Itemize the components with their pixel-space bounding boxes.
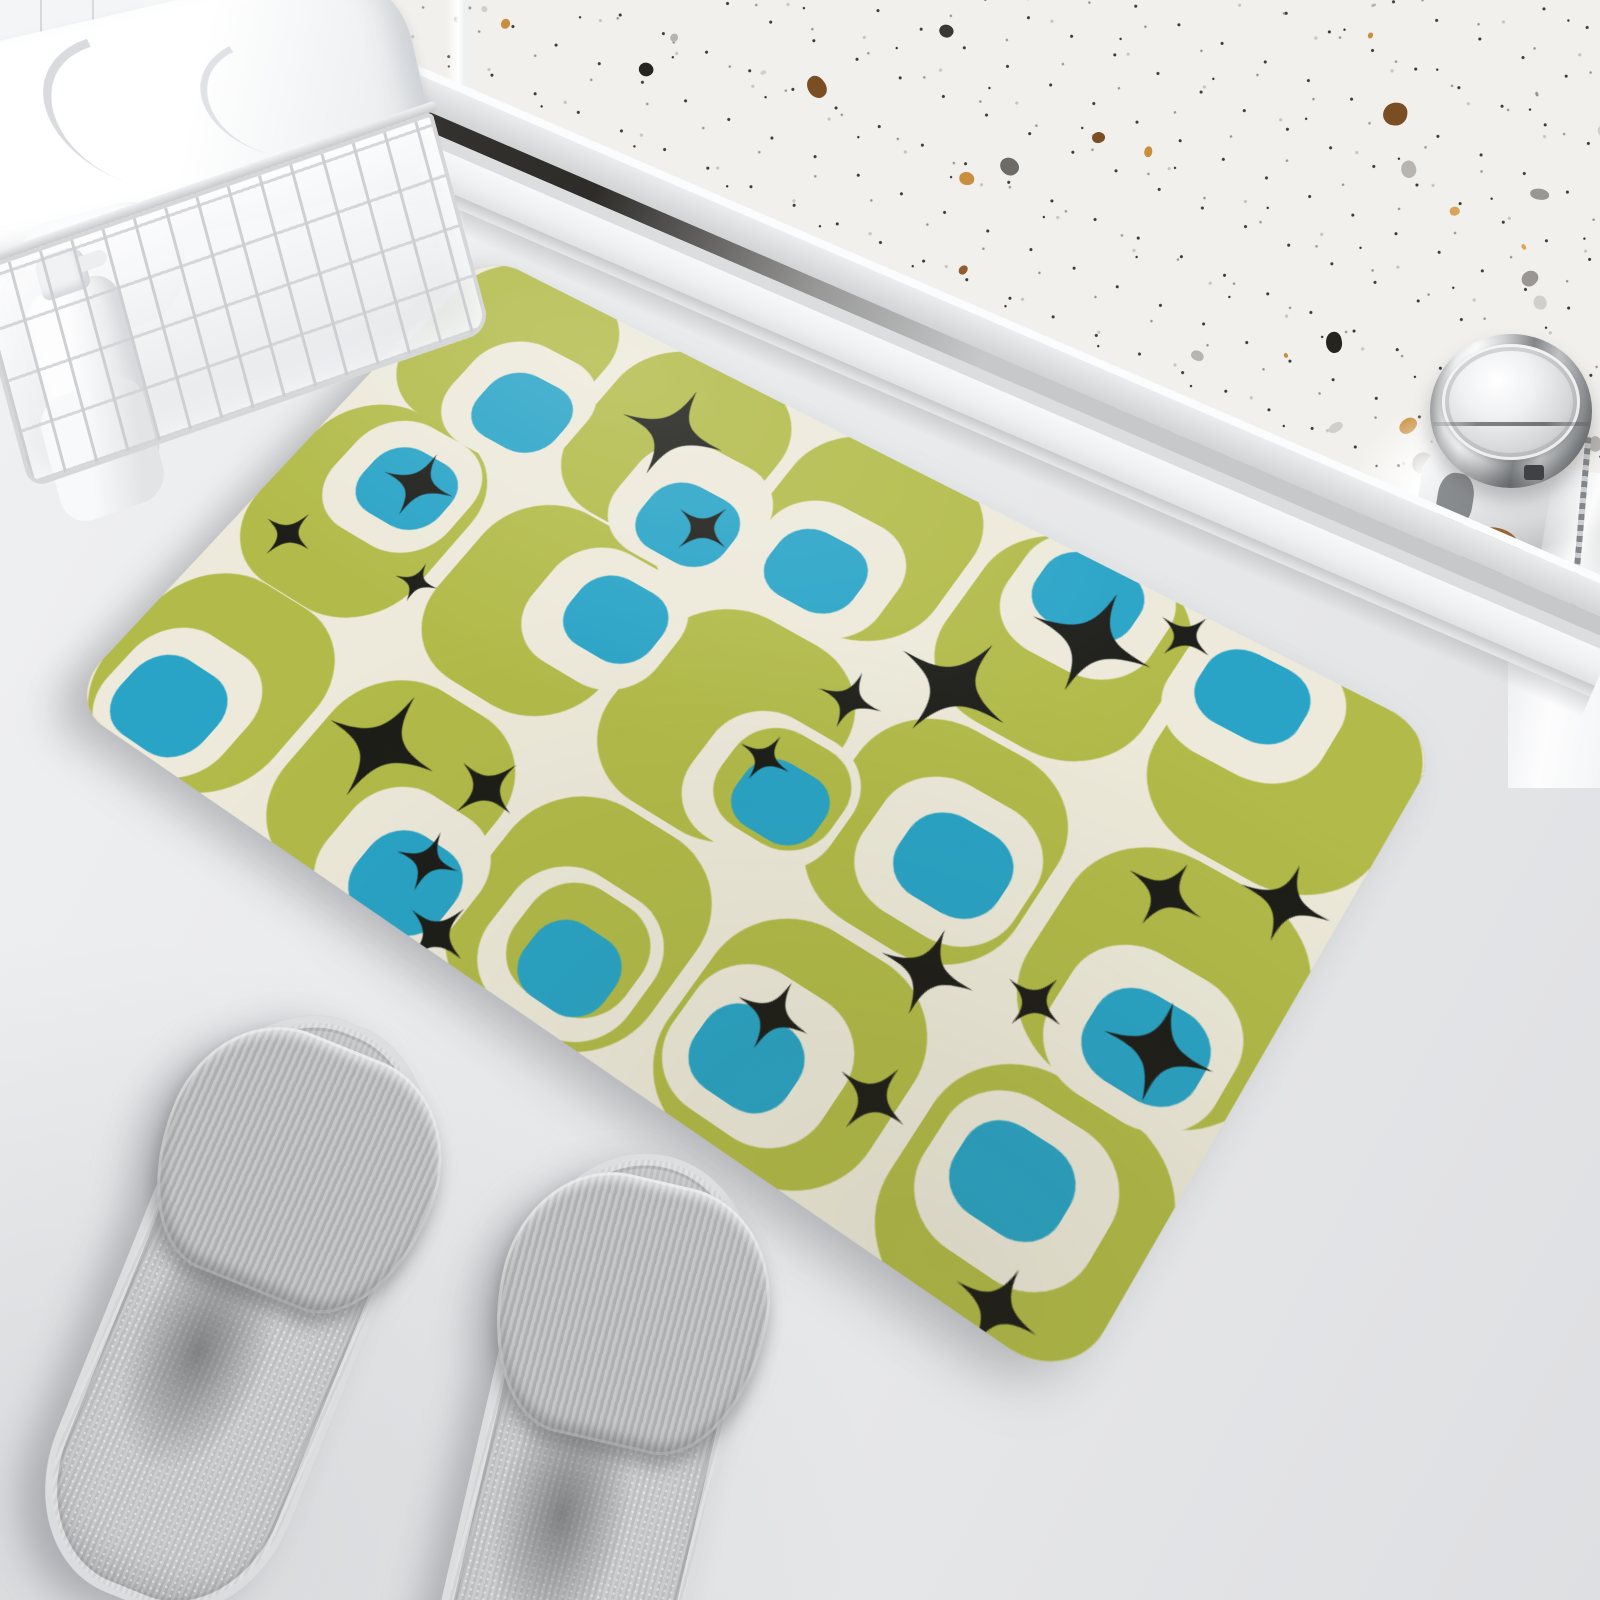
bottle-cap [33, 244, 92, 303]
terrazzo-chip [957, 264, 969, 277]
terrazzo-chip [760, 70, 767, 76]
terrazzo-chip [1327, 420, 1345, 436]
terrazzo-chip [802, 72, 831, 101]
faucet-knob-seam [1433, 422, 1589, 426]
terrazzo-chip [1448, 205, 1461, 218]
terrazzo-chip [1283, 352, 1290, 359]
terrazzo-chip [499, 17, 513, 31]
terrazzo-chip [1520, 244, 1527, 251]
faucet-knob [1430, 334, 1592, 488]
terrazzo-chip [936, 22, 955, 41]
terrazzo-chip [1091, 129, 1107, 144]
terrazzo-chip [1368, 32, 1374, 38]
terrazzo-chip [636, 60, 655, 79]
terrazzo-chip [996, 154, 1022, 180]
terrazzo-chip [1534, 296, 1547, 310]
terrazzo-chip [1529, 188, 1549, 201]
terrazzo-chip [1519, 267, 1541, 289]
terrazzo-chip [1370, 3, 1376, 8]
scene [0, 0, 1600, 1600]
faucet-knob-top [1442, 344, 1580, 460]
terrazzo-chip [960, 172, 975, 185]
terrazzo-chip [1382, 101, 1408, 127]
terrazzo-chip [669, 33, 678, 42]
terrazzo-chip [481, 6, 488, 12]
terrazzo-chip [1398, 159, 1419, 181]
terrazzo-chip [1595, 122, 1600, 140]
bottle-spout [76, 248, 109, 273]
terrazzo-chip [1190, 349, 1205, 362]
terrazzo-chip [1324, 331, 1344, 355]
terrazzo-chip [1534, 91, 1539, 97]
terrazzo-chip [1144, 146, 1153, 157]
faucet-knob-notch [1524, 465, 1544, 480]
